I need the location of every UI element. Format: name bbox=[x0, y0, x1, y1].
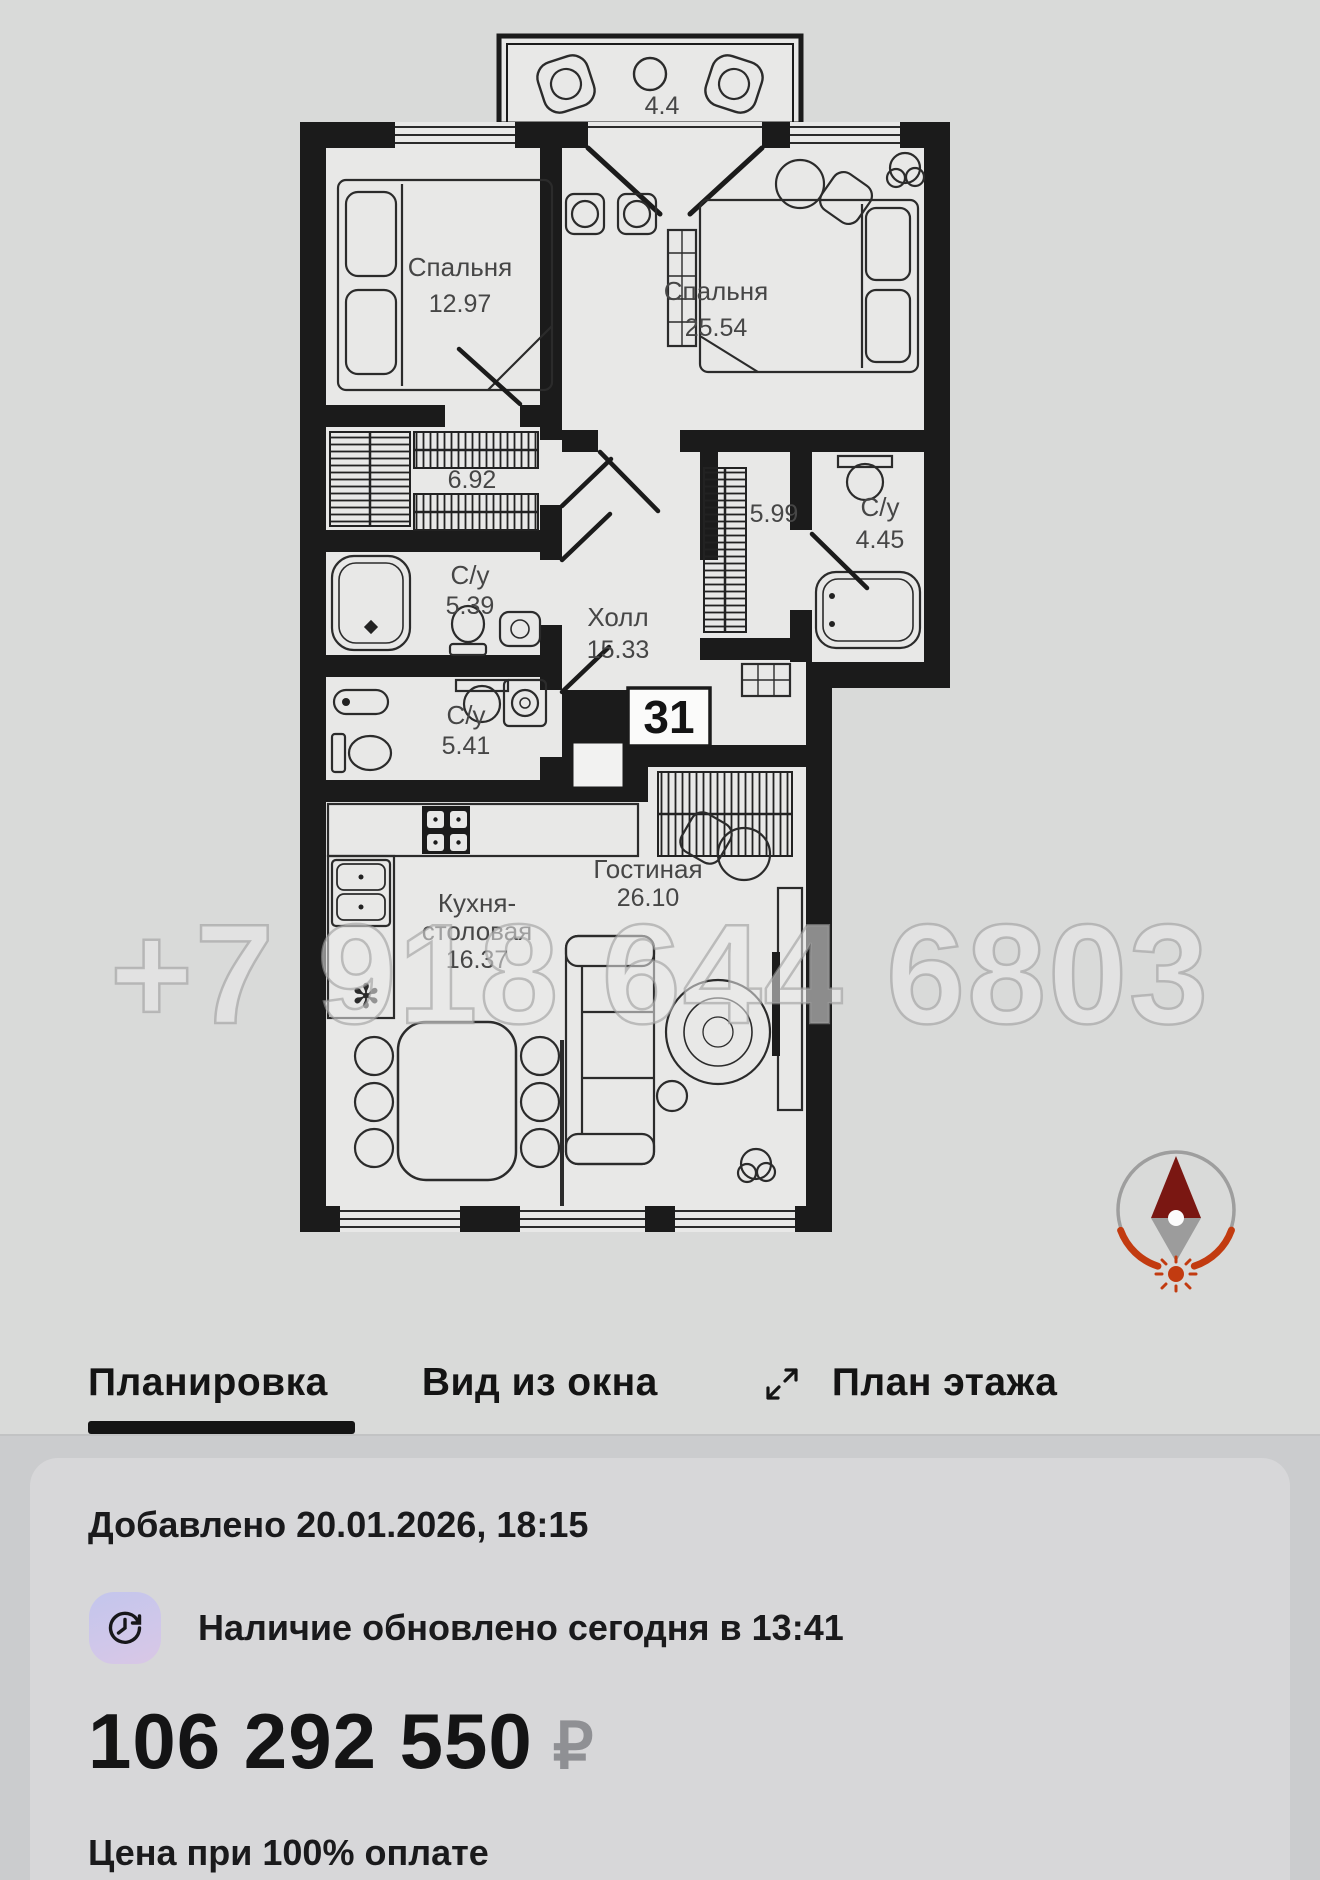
corridor-area: 5.99 bbox=[750, 500, 799, 528]
living-name: Гостиная bbox=[593, 854, 702, 884]
vent-shaft bbox=[572, 742, 624, 788]
hallway-area: 15.33 bbox=[587, 636, 650, 664]
expand-icon[interactable] bbox=[762, 1364, 802, 1404]
bathroom1-area: 5.39 bbox=[446, 592, 495, 620]
price-value: 106 292 550 bbox=[88, 1697, 533, 1785]
bathroom3-area: 4.45 bbox=[856, 526, 905, 554]
listing-page: ✻ 31 Спальня 12.97 Спальня 25.5 bbox=[0, 0, 1320, 1880]
bedroom-large-name: Спальня bbox=[664, 276, 768, 306]
tab-bar: Планировка Вид из окна План этажа bbox=[0, 1340, 1320, 1436]
tab-planirovka[interactable]: Планировка bbox=[88, 1360, 328, 1406]
snowflake-symbol: ✻ bbox=[352, 978, 381, 1016]
living-area: 26.10 bbox=[617, 884, 680, 912]
bathroom2-area: 5.41 bbox=[442, 732, 491, 760]
bathroom3-name: С/у bbox=[861, 492, 900, 522]
compass-needle-north bbox=[1151, 1156, 1201, 1218]
bedroom-small-area: 12.97 bbox=[429, 290, 492, 318]
active-tab-indicator bbox=[88, 1421, 355, 1434]
floorplan-drawing: ✻ 31 Спальня 12.97 Спальня 25.5 bbox=[0, 0, 1320, 1345]
availability-text: Наличие обновлено сегодня в 13:41 bbox=[198, 1606, 844, 1650]
price-row: 106 292 550₽ bbox=[88, 1696, 593, 1787]
floorplan-image[interactable]: ✻ 31 Спальня 12.97 Спальня 25.5 bbox=[0, 0, 1320, 1340]
kitchen-area: 16.37 bbox=[446, 946, 509, 974]
kitchen-name-line1: Кухня- bbox=[438, 888, 516, 918]
details-card: Добавлено 20.01.2026, 18:15 Наличие обно… bbox=[30, 1458, 1290, 1880]
hallway-name: Холл bbox=[587, 602, 648, 632]
price-caption: Цена при 100% оплате bbox=[88, 1832, 489, 1874]
tab-plan-etazha[interactable]: План этажа bbox=[832, 1360, 1058, 1406]
bathroom1-name: С/у bbox=[451, 560, 490, 590]
added-date-text: Добавлено 20.01.2026, 18:15 bbox=[88, 1504, 588, 1546]
apartment-number-box: 31 bbox=[628, 688, 710, 746]
tab-vid-iz-okna[interactable]: Вид из окна bbox=[422, 1360, 658, 1406]
apartment-number: 31 bbox=[643, 691, 694, 743]
details-section: Добавлено 20.01.2026, 18:15 Наличие обно… bbox=[0, 1436, 1320, 1880]
bedroom-small-name: Спальня bbox=[408, 252, 512, 282]
compass-sun bbox=[1156, 1257, 1196, 1291]
currency-symbol: ₽ bbox=[553, 1710, 594, 1782]
balcony-area: 4.4 bbox=[645, 92, 680, 120]
compass-icon bbox=[1117, 1151, 1235, 1291]
wardrobe-area: 6.92 bbox=[448, 466, 497, 494]
stove bbox=[422, 806, 470, 854]
kitchen-name-line2: столовая bbox=[422, 916, 533, 946]
bedroom-large-area: 25.54 bbox=[685, 314, 748, 342]
bathroom2-name: С/у bbox=[447, 700, 486, 730]
clock-refresh-icon bbox=[89, 1592, 161, 1664]
